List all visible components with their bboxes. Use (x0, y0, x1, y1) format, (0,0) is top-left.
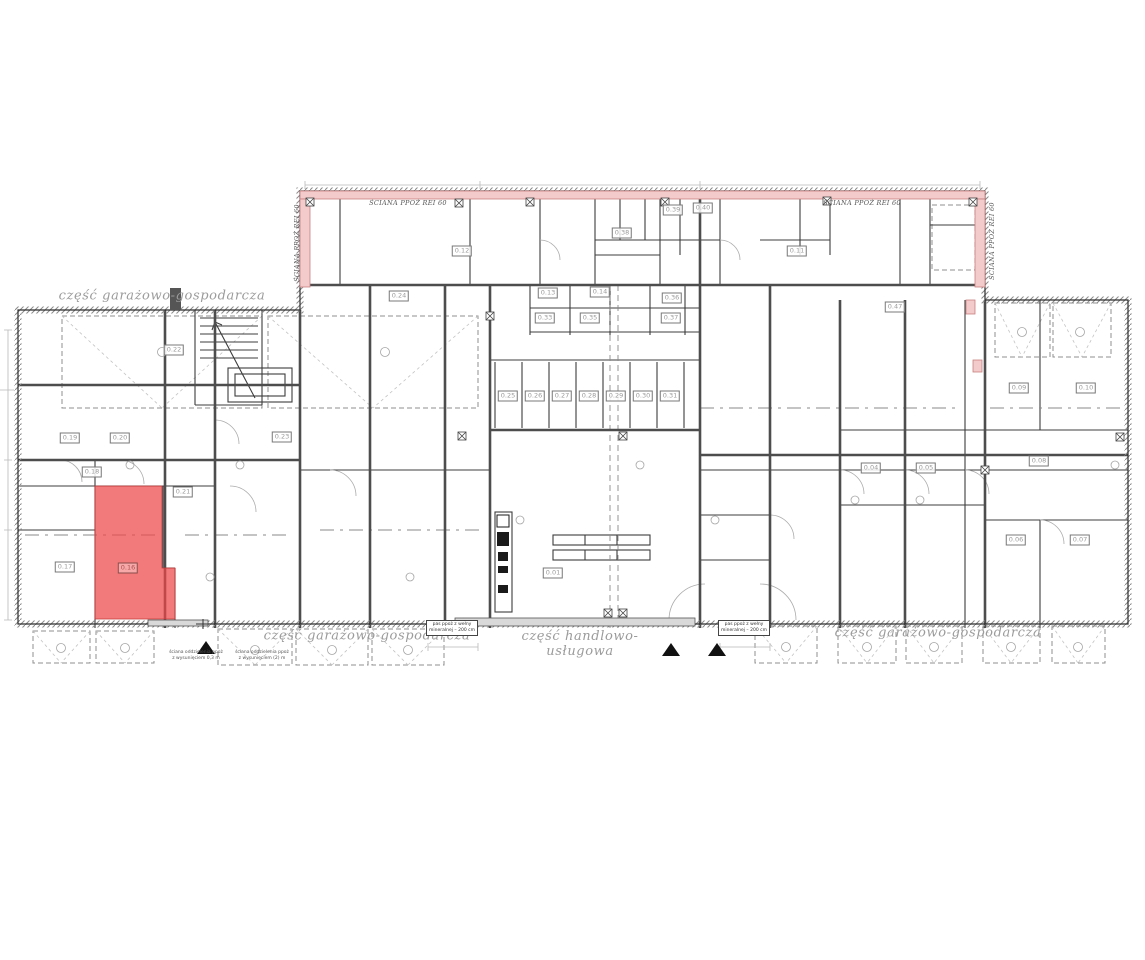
structural-walls (18, 199, 1128, 628)
firewall-bands (300, 191, 985, 372)
floor-plan-canvas (0, 0, 1145, 960)
partition-walls (18, 199, 1128, 628)
floor-plan-page: część garażowo-gospodarczaczęść garażowo… (0, 0, 1145, 960)
counter-fixtures (497, 515, 509, 593)
parking-bays (33, 205, 1111, 665)
centerlines (25, 285, 1125, 628)
axis-markers (306, 197, 1124, 617)
